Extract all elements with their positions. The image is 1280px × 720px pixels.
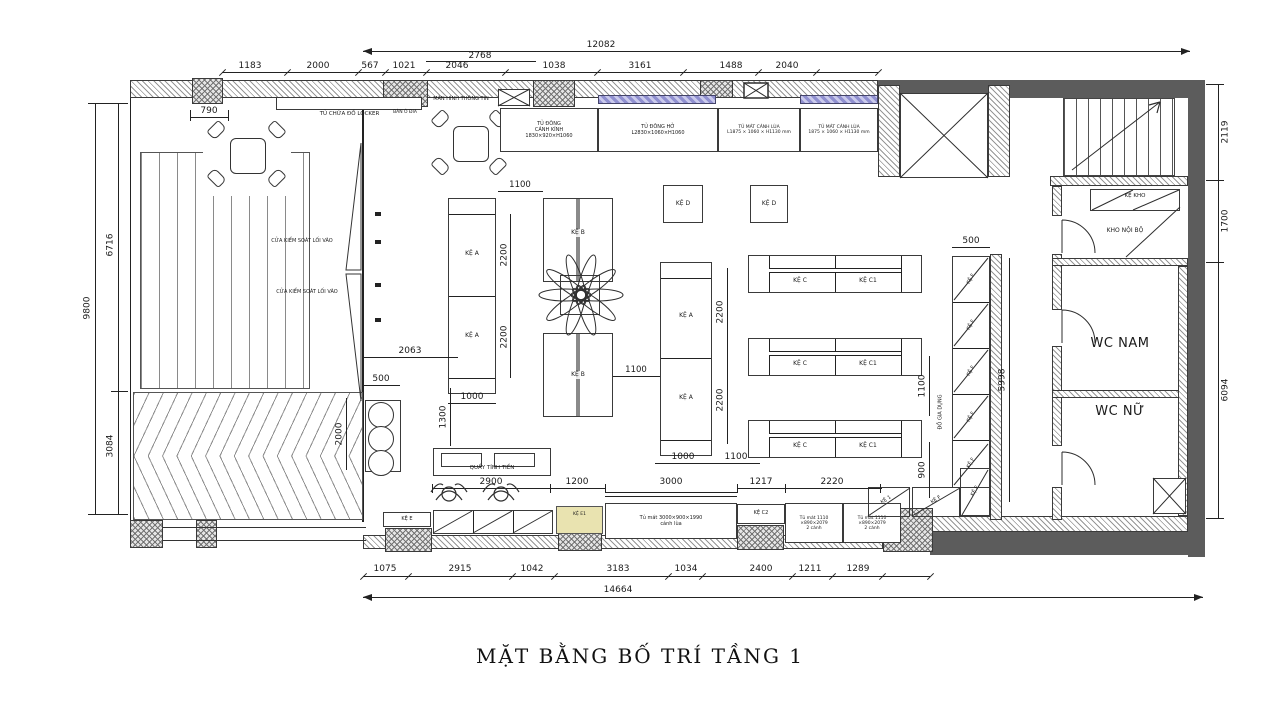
chair-icon [487, 156, 508, 177]
shelf-ke-a-col1 [448, 198, 496, 394]
shelf-ke-e1 [556, 506, 603, 534]
ban-o-dia-label: BÀN Ô ĐIA [379, 110, 431, 116]
dim-aisle: 1100 [625, 366, 647, 375]
dim-1300: 1300 [440, 406, 449, 429]
info-screen-box [498, 89, 530, 106]
shelf-divider [835, 421, 836, 457]
open-freezer: TỦ ĐÔNG HỞ L2830×1060×H1060 [598, 108, 718, 152]
dim-shelf: 2200 [717, 389, 726, 412]
wall-pier [737, 525, 784, 550]
shelf-cap [769, 256, 770, 292]
shaft-box [1153, 478, 1186, 514]
chair-icon [430, 156, 451, 177]
ke-a-label: KỆ A [664, 312, 708, 320]
dim-aisle: 1100 [509, 181, 531, 190]
fixture-line: cánh lùa [660, 521, 681, 527]
wall-pier [192, 78, 223, 104]
fixture-line: L2830×1060×H1060 [631, 130, 684, 136]
dim-row-900: 900 [919, 461, 928, 478]
stool-icon [368, 402, 394, 428]
kho-noi-bo-label: KHO NỘI BỘ [1085, 227, 1165, 235]
sensor-dot [375, 318, 381, 322]
dim-ext [880, 484, 881, 493]
cooler-sliding-door-r: TỦ MÁT CÁNH LÙA 1875 × 1060 × H1130 mm [800, 108, 878, 152]
dim-5998: 5998 [999, 369, 1008, 392]
dim-ext [111, 391, 128, 392]
ke-a-label: KỆ A [452, 332, 492, 340]
wall-pier [558, 533, 602, 551]
dim-line [498, 191, 543, 192]
dim-line [363, 385, 400, 386]
shelf-diagonal [433, 510, 553, 534]
wall-bottom-left [163, 527, 366, 541]
ke-c-label: KỆ C [770, 277, 830, 285]
dim-ext [432, 484, 433, 493]
shelf-divider [513, 511, 514, 533]
entrance-door-leaf [346, 143, 361, 401]
wall-pier [130, 520, 163, 548]
dim-line [952, 247, 990, 248]
cooler-sliding-door-l: TỦ MÁT CÁNH LÙA L1875 × 1060 × H1130 mm [718, 108, 800, 152]
dim-left-lower: 3084 [107, 435, 116, 458]
dim-line [1009, 258, 1010, 502]
dim: 2915 [449, 565, 472, 574]
checkout-label: QUẦY TÍNH TIỀN [433, 465, 551, 472]
shelf-divider [953, 440, 989, 441]
dim: 2000 [307, 62, 330, 71]
dim-line [222, 72, 878, 73]
shelf-divider [661, 278, 711, 279]
stairs [1063, 98, 1175, 176]
ramp-upper [134, 393, 362, 456]
dim-line [190, 117, 228, 118]
dim-tick [927, 573, 934, 580]
dim-line [613, 376, 660, 377]
person-icon [431, 484, 467, 501]
wall-inner-left [1052, 487, 1062, 520]
sliding-track [605, 492, 737, 497]
dim: 1217 [750, 478, 773, 487]
dim-bottom-total: 14664 [604, 586, 633, 595]
dim-right-upper: 2119 [1222, 121, 1231, 144]
dim-line [550, 488, 605, 489]
dim-line [655, 463, 712, 464]
ke-c1-label: KỆ C1 [838, 277, 898, 285]
ke-d-label: KỆ D [750, 200, 788, 208]
table-icon [453, 126, 489, 162]
dim-line [727, 268, 728, 356]
dim-line [363, 597, 1203, 598]
ke-c2-label: KỆ C2 [737, 510, 785, 516]
shelf-ke-c-row [748, 420, 922, 458]
fixture-line: 1875 × 1060 × H1130 mm [808, 130, 869, 135]
dim-line [727, 356, 728, 444]
sensor-dot [375, 240, 381, 244]
ke-e-label: KỆ E [383, 516, 431, 522]
ramp-lower [134, 456, 362, 519]
shelf-cap [901, 256, 902, 292]
ke-b-label: KỆ B [546, 371, 610, 379]
dim-line [737, 488, 882, 489]
wall-bottom-right [930, 532, 1205, 555]
wall-inner-left [1052, 186, 1062, 216]
cooler-3000: Tủ mát 3000×900×1990 cánh lùa [605, 503, 737, 539]
dim-line [712, 463, 760, 464]
dim: 2220 [821, 478, 844, 487]
fixture-line: 2 cánh [806, 526, 821, 531]
shelf-track [769, 351, 901, 356]
shelf-ke-1 [868, 487, 910, 517]
elevator-wall [988, 85, 1010, 177]
shelf-divider [661, 358, 711, 359]
shelf-divider [449, 296, 495, 297]
dim: 1488 [720, 62, 743, 71]
wall-left-line [130, 98, 131, 520]
dim-ext [737, 484, 738, 493]
glass-band [800, 95, 878, 104]
dim-top-sub: 2768 [469, 52, 492, 61]
dim-shelf: 2200 [501, 244, 510, 267]
dim-shelf: 1000 [672, 453, 695, 462]
dim-line [95, 103, 96, 515]
shelf-divider [449, 214, 495, 215]
dim: 1075 [374, 565, 397, 574]
dim-line [426, 61, 536, 62]
info-screen-label: MÀN HÌNH THÔNG TIN [420, 96, 502, 102]
dim-ext [1206, 262, 1224, 263]
dim-aisle: 1100 [725, 453, 748, 462]
access-gate-label: CỬA KIỂM SOÁT LỐI VÀO [243, 238, 361, 244]
dim-line [432, 488, 550, 489]
dim-line [448, 403, 496, 404]
dim: 1021 [393, 62, 416, 71]
shelf-divider [449, 378, 495, 379]
shelf-divider [835, 339, 836, 375]
dim: 1042 [521, 565, 544, 574]
dim-ext [1206, 518, 1224, 519]
wall-pier [385, 528, 432, 552]
dim-line [346, 398, 347, 470]
wall-wc-separator [1052, 390, 1188, 398]
cooler-1110: Tủ mát 1110 ×890×2079 2 cánh [785, 503, 843, 543]
fixture-line: L1875 × 1060 × H1130 mm [727, 130, 791, 135]
dim-ext [88, 103, 128, 104]
dim: 1034 [675, 565, 698, 574]
wall-pier [533, 80, 575, 107]
wall-right [1188, 80, 1205, 557]
ke-a-label: KỆ A [452, 250, 492, 258]
shelf-divider [953, 302, 989, 303]
dim-line [1218, 84, 1219, 518]
table-icon [230, 138, 266, 174]
plant-pot [560, 275, 600, 315]
chair-icon [430, 109, 451, 130]
dim-right-lower: 6094 [1222, 379, 1231, 402]
floor-plan-canvas: CỬA KIỂM SOÁT LỐI VÀO CỬA KIỂM SOÁT LỐI … [0, 0, 1280, 720]
dim: 2400 [750, 565, 773, 574]
glass-band [598, 95, 716, 104]
dim-ext [550, 484, 551, 493]
ke-c1-label: KỆ C1 [838, 442, 898, 450]
dim-ext [605, 484, 606, 493]
dim-left-upper: 6716 [107, 234, 116, 257]
shelf-divider [661, 440, 711, 441]
dim: 1183 [239, 62, 262, 71]
dim-line [510, 214, 511, 296]
fixture-line: 2 cánh [864, 526, 879, 531]
shelf-ke-c-row [748, 338, 922, 376]
access-gate-label: CỬA KIỂM SOÁT LỐI VÀO [248, 289, 366, 295]
dim-line [510, 296, 511, 378]
ke-e1-label: KỆ E1 [556, 512, 603, 518]
dim-2063: 2063 [399, 347, 422, 356]
dim: 3161 [629, 62, 652, 71]
dim-2000: 2000 [336, 423, 345, 446]
dim: 1200 [566, 478, 589, 487]
dim-line [929, 356, 930, 416]
dim-500: 500 [372, 375, 389, 384]
ke-c-label: KỆ C [770, 360, 830, 368]
ramp [133, 392, 363, 520]
dim: 2040 [776, 62, 799, 71]
shelf-cap [901, 339, 902, 375]
sensor-dot [375, 283, 381, 287]
dim-right-mid: 1700 [1222, 210, 1231, 233]
dim-ext [1206, 180, 1224, 181]
shelf-track [769, 433, 901, 438]
dim-ext [785, 484, 786, 493]
dim-shelf: 2200 [501, 326, 510, 349]
sensor-dot [375, 212, 381, 216]
dim-top-total: 12082 [587, 41, 616, 50]
dim-790: 790 [200, 107, 217, 116]
shelf-ke-b-top [543, 198, 613, 282]
dim: 2046 [446, 62, 469, 71]
dim-ext [1206, 84, 1224, 85]
dim-left-total: 9800 [84, 297, 93, 320]
dim-shelf: 2200 [717, 301, 726, 324]
dim-line [118, 103, 119, 514]
dim: 2900 [480, 478, 503, 487]
shelf-spine [576, 199, 580, 281]
shelf-divider [835, 256, 836, 292]
ke-c-label: KỆ C [770, 442, 830, 450]
dim: 1289 [847, 565, 870, 574]
dim: 1211 [799, 565, 822, 574]
shelf-ke-a-col2 [660, 262, 712, 456]
ke-d-label: KỆ D [663, 200, 703, 208]
dim-ext [190, 110, 191, 121]
ke-c1-label: KỆ C1 [838, 360, 898, 368]
dim-500: 500 [962, 237, 979, 246]
ke-a-label: KỆ A [664, 394, 708, 402]
wall-kho-bottom [1052, 258, 1188, 266]
ke-kho-label: KỆ KHO [1090, 193, 1180, 200]
shelf-cap [769, 421, 770, 457]
stool-icon [368, 450, 394, 476]
dim-line [363, 576, 930, 577]
ke-b-label: KỆ B [546, 229, 610, 237]
shelf-track [769, 268, 901, 273]
dim-row-1100: 1100 [919, 375, 928, 398]
freezer-glass-door: TỦ ĐÔNG CÁNH KÍNH 1830×920×H1060 [500, 108, 598, 152]
wall-kho-top [1050, 176, 1188, 186]
shelf-cap [769, 339, 770, 375]
elevator-wall [878, 85, 900, 177]
shelf-cap [901, 421, 902, 457]
dim-line [363, 357, 458, 358]
shelf-ke-c-row [748, 255, 922, 293]
shelf-divider [473, 511, 474, 533]
do-gia-dung-label: ĐỒ GIA DỤNG [939, 395, 944, 430]
dim-line [450, 388, 451, 446]
elevator-shaft [900, 93, 988, 178]
wc-nu-label: WC NỮ [1070, 404, 1170, 420]
page-title: MẶT BẰNG BỐ TRÍ TẦNG 1 [0, 644, 1280, 668]
shelf-divider [953, 394, 989, 395]
dim-ext [88, 514, 128, 515]
dim: 1038 [543, 62, 566, 71]
dim-shelf: 1000 [461, 393, 484, 402]
wc-nam-label: WC NAM [1070, 336, 1170, 352]
dim-tick [875, 69, 882, 76]
locker-cabinet [276, 97, 422, 110]
fixture-line: 1830×920×H1060 [525, 133, 572, 139]
dim: 3000 [660, 478, 683, 487]
shelf-divider [953, 348, 989, 349]
stool-icon [368, 426, 394, 452]
dim: 567 [361, 62, 378, 71]
dim-ext [228, 110, 229, 121]
dim-line [929, 442, 930, 498]
dim: 3183 [607, 565, 630, 574]
